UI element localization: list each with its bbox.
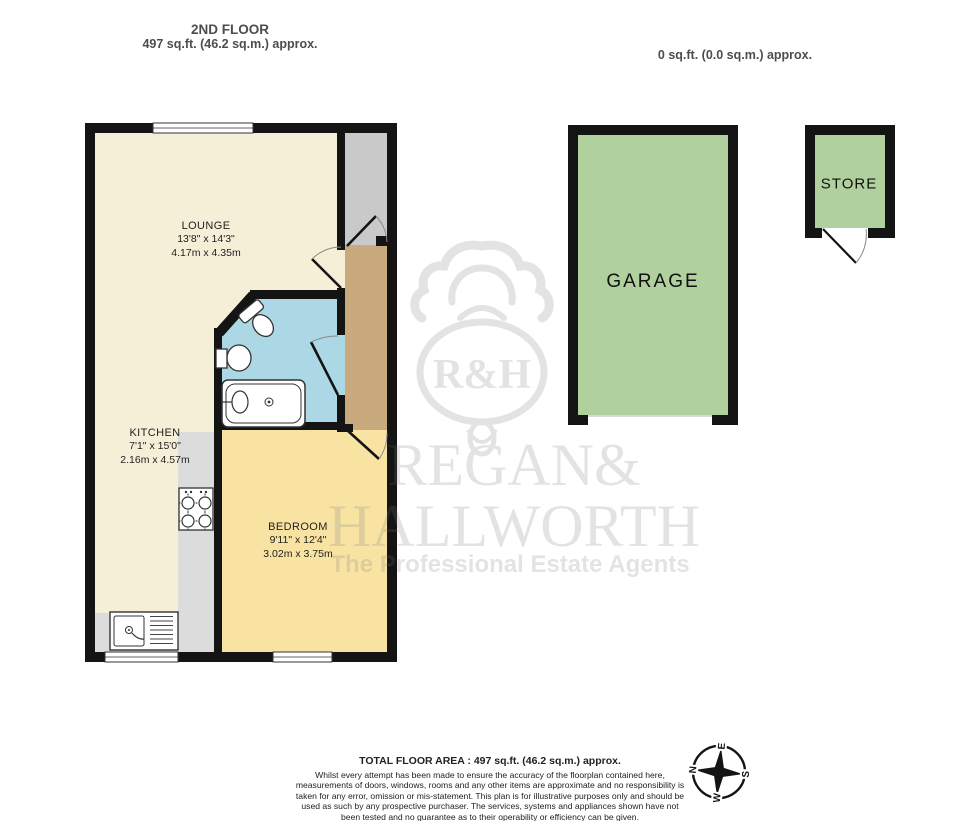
sink-unit-icon (110, 612, 178, 650)
floor-header: 2ND FLOOR 497 sq.ft. (46.2 sq.m.) approx… (142, 22, 317, 51)
bedroom-window (273, 652, 332, 662)
kitchen-label: KITCHEN 7'1" x 15'0" 2.16m x 4.57m (120, 426, 189, 468)
outbuilding-header: 0 sq.ft. (0.0 sq.m.) approx. (658, 48, 812, 62)
watermark-tagline: The Professional Estate Agents (330, 551, 689, 578)
kitchen-window (105, 652, 178, 662)
store-label: STORE (821, 176, 877, 193)
floor-area: 497 sq.ft. (46.2 sq.m.) approx. (142, 37, 317, 51)
floor-title: 2ND FLOOR (142, 22, 317, 37)
floorplan-drawing: R&H REGAN& HALLWORTH The Professional Es… (0, 0, 980, 821)
outbuilding-area: 0 sq.ft. (0.0 sq.m.) approx. (658, 48, 812, 62)
footer: TOTAL FLOOR AREA : 497 sq.ft. (46.2 sq.m… (0, 755, 980, 821)
watermark-name-line2: HALLWORTH (328, 493, 700, 559)
watermark-name-line1: REGAN& (387, 432, 640, 498)
hall-floor (345, 245, 387, 430)
crest-monogram: R&H (433, 352, 531, 398)
compass-e: E (716, 742, 728, 750)
garage-label: GARAGE (606, 271, 699, 293)
bedroom-label: BEDROOM 9'11" x 12'4" 3.02m x 3.75m (263, 520, 332, 562)
disclaimer-text: Whilst every attempt has been made to en… (294, 770, 686, 821)
lounge-window (153, 123, 253, 133)
crest-logo: R&H (415, 245, 550, 454)
lounge-label: LOUNGE 13'8" x 14'3" 4.17m x 4.35m (171, 219, 240, 261)
basin-icon (216, 345, 251, 371)
bathtub-icon (222, 380, 305, 427)
store-building (805, 125, 895, 263)
stove-icon (179, 488, 214, 531)
floorplan-page: R&H REGAN& HALLWORTH The Professional Es… (0, 0, 980, 821)
main-flat (85, 123, 397, 662)
total-floor-area: TOTAL FLOOR AREA : 497 sq.ft. (46.2 sq.m… (0, 755, 980, 767)
